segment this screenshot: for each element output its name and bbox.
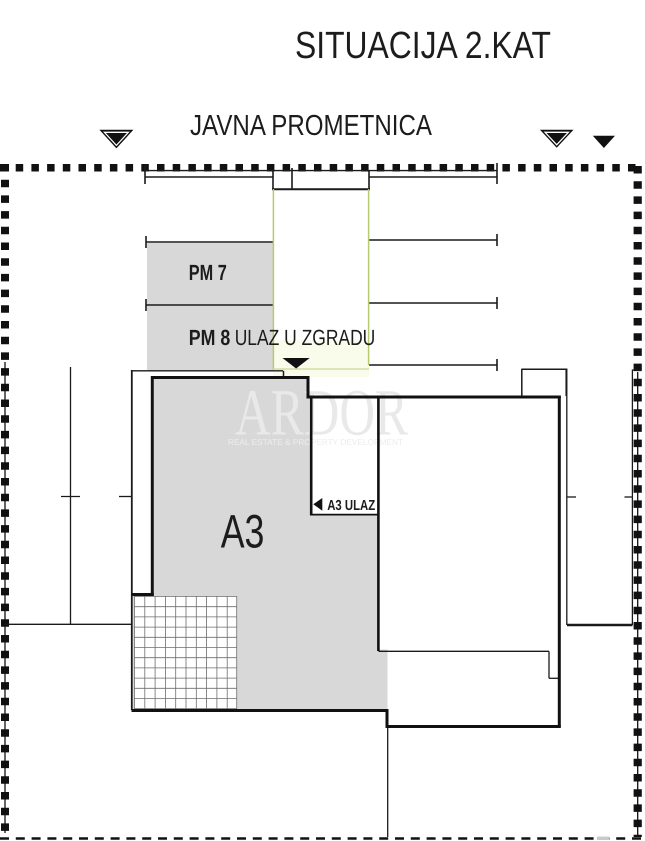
svg-text:SITUACIJA 2.KAT: SITUACIJA 2.KAT: [295, 25, 551, 67]
svg-text:REAL ESTATE & PROPERTY DEVELOP: REAL ESTATE & PROPERTY DEVELOPMENT: [228, 437, 403, 447]
svg-text:A3: A3: [221, 505, 265, 558]
svg-text:ULAZ U ZGRADU: ULAZ U ZGRADU: [235, 325, 376, 350]
svg-text:A3 ULAZ: A3 ULAZ: [327, 498, 375, 514]
svg-text:PM 7: PM 7: [189, 260, 227, 285]
svg-text:PM 8: PM 8: [189, 325, 231, 350]
svg-text:JAVNA PROMETNICA: JAVNA PROMETNICA: [190, 110, 433, 142]
